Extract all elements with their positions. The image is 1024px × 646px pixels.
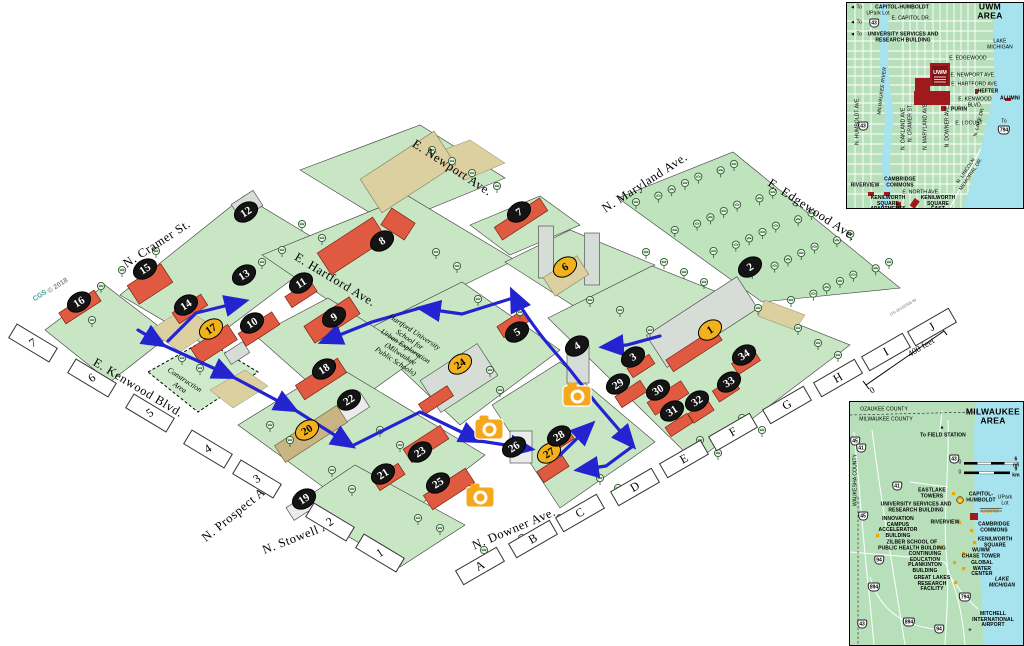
highway-shield-41: 41 [892,482,902,491]
grid-letter-E: E [659,440,709,479]
building-marker-24[interactable]: 24 [444,349,476,379]
svg-text:UWM: UWM [933,70,947,76]
building-marker-31[interactable]: 31 [656,396,688,426]
inset-label: E. NEWPORT AVE. [950,73,995,79]
building-marker-18[interactable]: 18 [308,354,340,384]
building-marker-1[interactable]: 1 [694,315,726,345]
street-label-e-edgewood-ave-: E. Edgewood Ave. [765,176,859,244]
inset-label: N. CRAMER ST. [908,104,914,142]
inset-label: UPark Lot [866,11,889,17]
building-marker-33[interactable]: 33 [713,367,745,397]
highway-shield-894: 894 [903,618,915,627]
highway-shield-43: 43 [858,122,868,131]
grid-number-text: 6 [85,370,98,386]
highway-shield-43: 43 [869,19,879,28]
highway-shield-794: 794 [998,126,1010,135]
inset-label: GLOBAL WATER CENTER [962,561,1003,578]
inset-label: ◄ To [850,20,862,26]
grid-number-text: 2 [323,514,336,530]
grid-letter-text: F [726,424,739,440]
inset-label: LAKE MICHIGAN [987,40,1013,51]
grid-number-text: 3 [250,471,263,487]
building-marker-17[interactable]: 17 [195,314,227,344]
map-text: 0 [867,385,876,396]
inset-label: UWM AREA [974,3,1007,22]
inset-label: ▲ [939,425,944,431]
highway-shield-94: 94 [874,556,884,565]
map-text: CGS [32,289,49,303]
inset-label: RIVERVIEW [851,183,880,189]
grid-number-text: 5 [143,405,156,421]
building-marker-13[interactable]: 13 [228,260,260,290]
building-marker-25[interactable]: 25 [422,468,454,498]
grid-letter-D: D [610,468,660,507]
grid-letter-text: C [573,505,587,522]
highway-shield-794: 794 [959,593,971,602]
inset-label: E. EDGEWOOD [949,56,987,62]
inset-label: EASTLAKE TOWERS [918,489,946,500]
grid-number-text: 4 [201,441,214,457]
building-marker-10[interactable]: 10 [236,308,268,338]
map-text: © 2018 [47,277,70,295]
grid-letter-text: J [926,319,938,334]
building-marker-22[interactable]: 22 [333,385,365,415]
camera-icon[interactable] [564,387,591,406]
building-marker-12[interactable]: 12 [230,197,262,227]
inset-label: CAMBRIDGE COMMONS [884,178,916,189]
inset-label: N. DOWNER AVE. [945,105,951,148]
grid-number-text: 1 [373,545,386,561]
building-marker-4[interactable]: 4 [561,331,593,361]
inset-label: N. MARYLAND AVE. [923,102,929,150]
highway-shield-43: 43 [857,620,867,629]
grid-letter-text: G [779,396,794,413]
inset-label: To FIELD STATION [920,433,966,439]
highway-shield-45: 45 [858,512,868,521]
inset-label: ◄ To [850,5,862,11]
inset-label: E. CAPITOL DR. [892,16,931,22]
grid-letter-C: C [555,494,605,533]
inset-label: 0 [959,470,962,476]
highway-shield-43: 43 [949,455,959,464]
camera-icon[interactable] [476,420,503,439]
inset-label: CONTINUING EDUCATION PLANKINTON BUILDING [908,552,942,574]
inset-label: E. HARTFORD AVE. [951,82,999,88]
inset-label: MILWAUKEE AREA [966,408,1020,427]
inset-label: WAUKESHA COUNTY [853,454,859,506]
inset-label: GREAT LAKES RESEARCH FACILITY [914,576,951,593]
inset-label: RIVERVIEW [931,520,960,526]
inset-label: INNOVATION CAMPUS ACCELERATOR BUILDING [879,517,918,539]
grid-letter-H: H [813,359,863,398]
inset-label: MILWAUKEE COUNTY [859,417,913,423]
grid-number-4: 4 [183,429,233,468]
building-marker-21[interactable]: 21 [367,459,399,489]
inset-label: ✈ [968,628,972,634]
grid-number-1: 1 [355,533,405,572]
inset-label: KENILWORTH SQUARE EAST [921,196,956,209]
building-marker-32[interactable]: 32 [681,386,713,416]
inset-label: CAPITOL- HUMBOLDT [966,493,995,504]
grid-letter-text: H [830,369,845,386]
inset-label: KENILWORTH SQUARE APARTMENTS [870,196,905,209]
building-marker-14[interactable]: 14 [170,290,202,320]
highway-shield-41: 41 [856,444,866,453]
building-marker-20[interactable]: 20 [291,415,323,445]
building-marker-26[interactable]: 26 [498,432,530,462]
milwaukee-area-inset-map[interactable]: U UWM MILWAUKEE AREAOZAUKEE COUNTYMILWAU… [849,401,1024,646]
street-label-e-newport-ave-: E. Newport Ave. [409,137,494,200]
map-text: GS-20155306-W [889,297,917,317]
campus-map-page: E. Newport Ave.N. Maryland Ave.E. Edgewo… [0,0,1024,646]
building-marker-6[interactable]: 6 [549,252,581,282]
uwm-area-inset-map[interactable]: UWM UWM AREA◄ ToCAPITOL-HUMBOLDTUPark Lo… [846,2,1024,209]
grid-letter-text: I [881,345,892,360]
inset-label: UNIVERSITY SERVICES AND RESEARCH BUILDIN… [868,33,939,44]
building-marker-7[interactable]: 7 [503,197,535,227]
building-marker-5[interactable]: 5 [501,317,533,347]
inset-label: ◄ To [850,32,862,38]
inset-label: WUWM CHASE TOWER [962,549,1001,560]
inset-label: CAMBRIDGE COMMONS [978,523,1010,534]
building-marker-16[interactable]: 16 [63,287,95,317]
inset-label: OZAUKEE COUNTY [860,407,908,413]
inset-label: To [1001,119,1006,125]
inset-label: N. OAKLAND AVE. [901,106,907,150]
grid-letter-text: E [677,451,691,468]
building-marker-23[interactable]: 23 [404,437,436,467]
inset-label: UPark Lot [996,496,1014,507]
building-marker-3[interactable]: 3 [617,342,649,372]
street-label-n-maryland-ave-: N. Maryland Ave. [599,150,690,216]
grid-letter-text: A [472,557,487,574]
building-marker-8[interactable]: 8 [366,226,398,256]
grid-letter-G: G [762,386,812,425]
grid-letter-I: I [861,333,911,372]
grid-letter-text: D [627,478,642,495]
inset-label: ALUMNI [1000,96,1020,102]
svg-text:U: U [958,498,961,503]
inset-label: ZILBER SCHOOL OF PUBLIC HEALTH BUILDING [878,541,946,552]
inset-label: 0 [959,460,962,466]
grid-letter-A: A [455,547,505,586]
highway-shield-894: 894 [868,583,880,592]
inset-label: LAKE MICHIGAN [989,578,1015,589]
grid-number-7: 7 [8,323,58,362]
inset-label: HEFTER [978,89,999,95]
inset-label: MITCHELL INTERNATIONAL AIRPORT [972,612,1014,629]
building-marker-9[interactable]: 9 [318,302,350,332]
grid-letter-F: F [708,413,758,452]
grid-letter-text: B [526,531,540,548]
building-marker-34[interactable]: 34 [728,340,760,370]
building-marker-2[interactable]: 2 [734,252,766,282]
inset-label: PURIN [951,107,967,113]
building-marker-29[interactable]: 29 [602,369,634,399]
highway-shield-94: 94 [934,625,944,634]
map-text: Hartford University School for Urban Exp… [368,313,441,382]
inset-label: 9 km [1012,468,1019,479]
svg-text:UWM: UWM [981,508,999,515]
inset-label: UNIVERSITY SERVICES AND RESEARCH BUILDIN… [881,503,952,514]
camera-icon[interactable] [467,488,494,507]
grid-number-text: 7 [26,335,39,351]
